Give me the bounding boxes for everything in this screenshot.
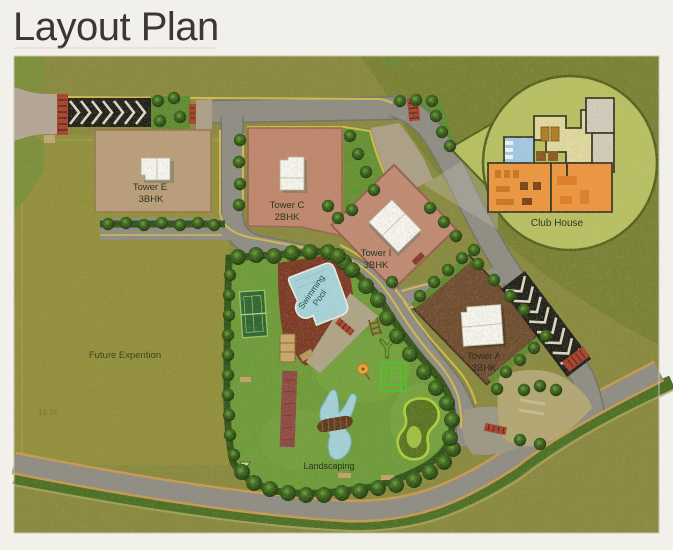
svg-text:Layout Plan: Layout Plan bbox=[13, 5, 219, 49]
